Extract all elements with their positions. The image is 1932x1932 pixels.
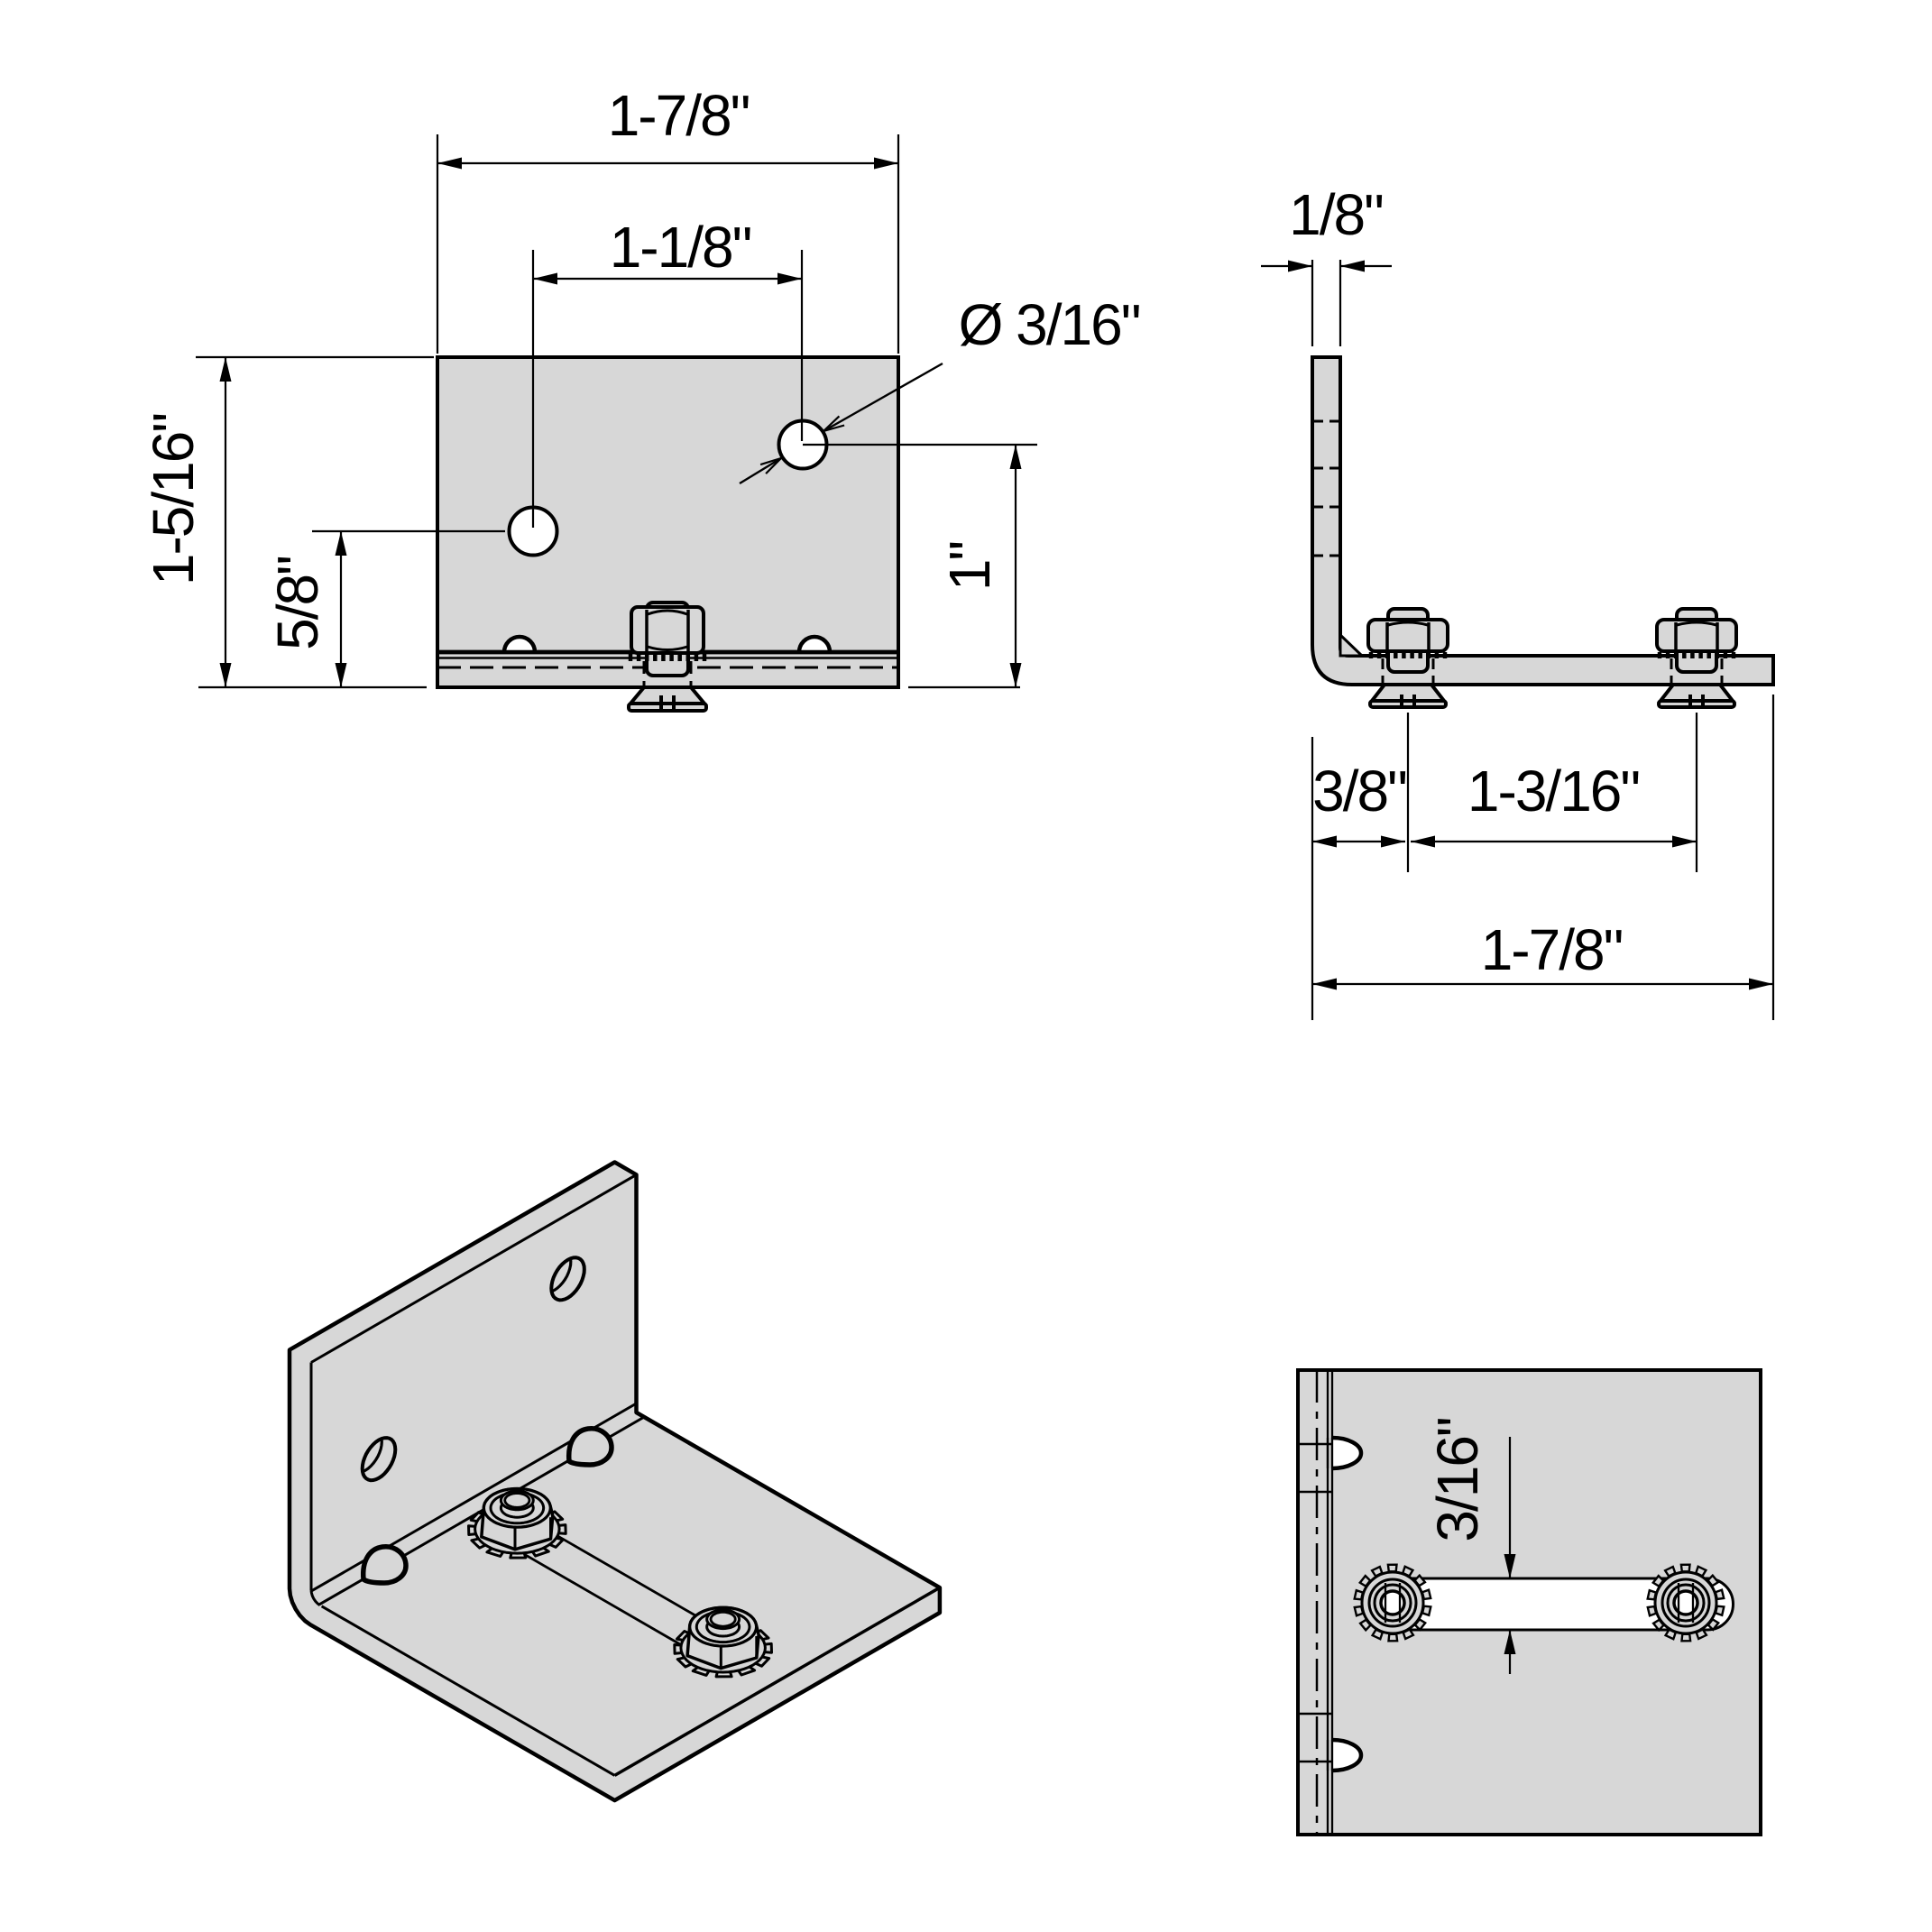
svg-text:1-7/8": 1-7/8" [608,83,750,148]
svg-text:Ø 3/16": Ø 3/16" [959,292,1140,357]
svg-text:3/16": 3/16" [1425,1418,1490,1541]
svg-text:1": 1" [937,542,1002,591]
svg-text:1-3/16": 1-3/16" [1467,759,1639,823]
svg-text:1-1/8": 1-1/8" [610,215,751,280]
svg-text:3/8": 3/8" [1312,759,1406,823]
svg-text:1-5/16": 1-5/16" [141,414,206,585]
svg-text:1-7/8": 1-7/8" [1481,917,1623,982]
svg-text:5/8": 5/8" [265,557,330,650]
svg-text:1/8": 1/8" [1289,182,1383,247]
